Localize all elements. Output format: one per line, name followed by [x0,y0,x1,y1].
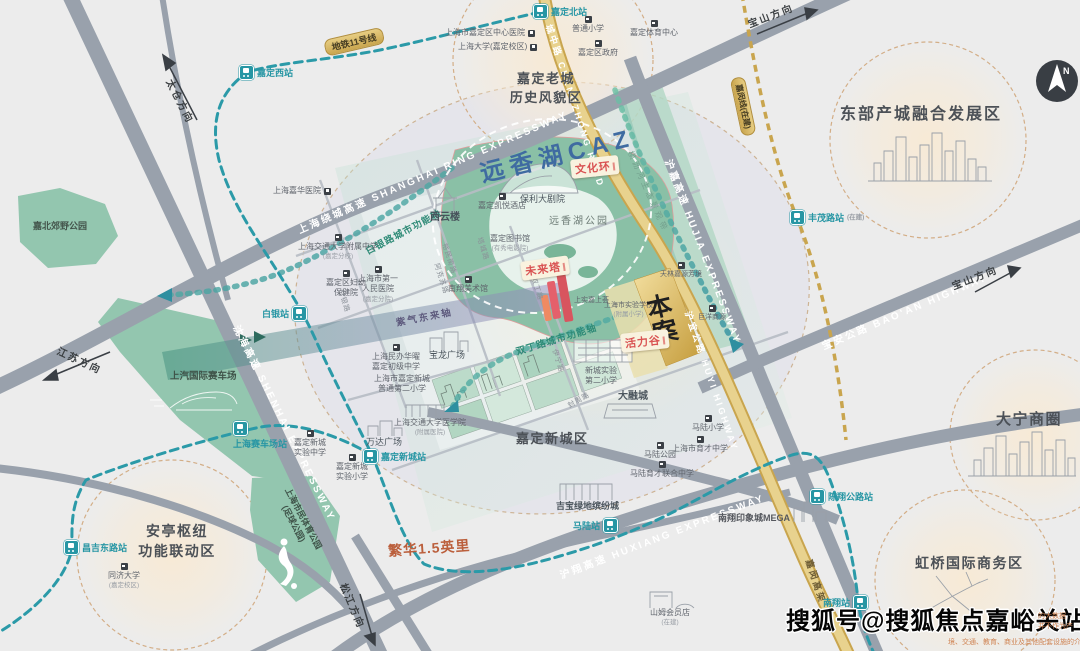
poi-label: 上海市第一 人民医院 [358,274,398,295]
station-label: 嘉定西站 [257,66,293,79]
poi-marker-icon [335,234,342,241]
poi-sublabel: (嘉定校区) [109,582,139,590]
station-label: 嘉定新城站 [381,450,426,463]
metro-station-icon [603,518,618,533]
poi-poly-grand-theatre: 保利大剧院 [520,194,565,206]
poi-malu-park: 马陆公园 [644,442,676,460]
poi-marker-icon [121,563,128,570]
poi-label: 山姆会员店 [650,608,690,618]
metro-station-icon [810,489,825,504]
poi-xincheng-experimental-hs: 嘉定新城 实验中学 [294,430,326,459]
poi-tianlin-jiayuan: 天林嘉源芳境 [660,262,702,279]
metro-station-icon [233,421,248,436]
district-label-hongqiao: 虹桥国际商务区 [915,553,1024,573]
poi-label: 嘉定新城 实验小学 [336,462,368,483]
station-label: 昌吉东路站 [82,541,127,554]
station-jiadingxincheng: 嘉定新城站 [363,449,426,464]
metro-station-icon [790,210,805,225]
compass-north-label: N [1063,66,1070,76]
poi-label: 马陆育才联合中学 [630,469,694,479]
poi-darongcheng-mall: 大融城 [618,390,648,403]
poi-huayao-junior-high: 上海民办华曜 嘉定初级中学 [372,344,420,373]
poi-marker-icon [659,461,666,468]
poi-label: 马陆小学 [692,423,724,433]
poi-label: 南翔美术馆 [448,284,488,294]
poi-label: 上海交通大学附属中学 [298,242,378,252]
compass-icon [1036,60,1078,102]
poi-jiabei-country-park: 嘉北郊野公园 [33,221,87,233]
poi-wanda-plaza: 万达广场 [366,437,402,449]
station-jiadingxi: 嘉定西站 [239,65,293,80]
poi-marker-icon [393,344,400,351]
station-label: 陈翔公路站 [828,490,873,503]
metro-station-icon [292,306,307,321]
poi-label: 嘉定凯悦酒店 [478,201,526,211]
station-label: 上海赛车场站 [233,437,287,450]
poi-label: 天林嘉源芳境 [660,270,702,279]
metro-station-icon [64,540,79,555]
poi-sublabel: (有秀电影院) [492,245,529,253]
poi-label: 同济大学 [108,571,140,581]
station-note: (在建) [847,214,864,222]
poi-marker-icon [465,276,472,283]
poi-sams-club: 山姆会员店(在建) [650,608,690,627]
poi-district-government: 嘉定区政府 [578,40,618,58]
poi-label: 嘉定图书馆 [490,234,530,244]
sams-club-sketch [650,592,694,608]
poi-nanxiang-incity-mega: 南翔印象城MEGA [718,513,790,525]
poi-sublabel: (嘉定分校) [323,253,353,261]
station-racing-circuit: 上海赛车场站 [233,421,287,450]
station-baiyin: 白银站 [262,306,307,321]
station-label: 丰茂路站 [808,211,844,224]
poi-art-museum: 南翔美术馆 [448,276,488,294]
poi-first-peoples-hospital: 上海市第一 人民医院(嘉定分院) [358,266,398,304]
metro-station-icon [363,449,378,464]
poi-tongji-university: 同济大学(嘉定校区) [108,563,140,590]
poi-keppel-greenland-mall: 吉宝绿地缤纷城 [556,501,619,513]
station-label: 嘉定北站 [551,5,587,18]
station-chenxiang-road: 陈翔公路站 [810,489,873,504]
station-jiadingbei: 嘉定北站 [533,4,587,19]
poi-putong-second-primary: 上海市嘉定新城 普通第二小学 [374,374,430,395]
district-label-anting-hub: 安亭枢纽 功能联动区 [132,521,222,561]
district-label-new-town: 嘉定新城区 [516,428,589,447]
poi-marker-icon [705,415,712,422]
poi-label: 上海交通大学医学院 [394,418,466,428]
poi-label: 上海嘉华医院 [273,186,321,196]
poi-juyang-shangyuan: 巨洋商源 [698,305,726,322]
poi-yuanxianghu-park: 远香湖公园 [549,215,609,228]
poi-marker-icon [678,262,685,269]
metro-station-icon [533,4,548,19]
poi-label: 马陆公园 [644,450,676,460]
station-changjidong-road: 昌吉东路站 [64,540,127,555]
poi-marker-icon [651,20,658,27]
poi-sports-center: 嘉定体育中心 [630,20,678,38]
poi-saic-racing-circuit: 上汽国际赛车场 [170,371,237,383]
poi-label: 上海市育才中学 [672,444,728,454]
poi-marker-icon [697,436,704,443]
poi-jiahua-hospital: 上海嘉华医院 [273,186,331,196]
poi-marker-icon [324,188,331,195]
poi-marker-icon [375,266,382,273]
watermark: 搜狐号@搜狐焦点嘉峪关站 [786,601,1080,636]
poi-label: 普通小学 [572,24,604,34]
poi-baolong-plaza: 宝龙广场 [429,350,465,362]
poi-marker-icon [528,30,535,37]
poi-sublabel: (附属小学) [613,311,643,319]
location-map: 嘉定老城 历史风貌区 东部产城融合发展区 大宁商圈 虹桥国际商务区 安亭枢纽 功… [0,0,1080,651]
poi-sublabel: (嘉定分院) [363,296,393,304]
poi-marker-icon [349,454,356,461]
district-label-east-integration: 东部产城融合发展区 [840,100,1002,124]
poi-second-experimental-primary: 新城实验 第二小学 [585,366,617,387]
poi-jiading-library: 嘉定图书馆(有秀电影院) [490,234,530,253]
poi-marker-icon [530,44,537,51]
station-malu: 马陆站 [573,518,618,533]
disclaimer-line: 境、交通、教育、商业及其他配套设施的介绍，旨在提供相关 [948,638,1080,648]
poi-marker-icon [499,193,506,200]
poi-yucai-high-school: 上海市育才中学 [672,436,728,454]
district-label-daning: 大宁商圈 [996,408,1062,429]
poi-marker-icon [657,442,664,449]
disclaimer-fragment: 的大数据 并不作为产 [1038,612,1073,632]
poi-marker-icon [307,430,314,437]
poi-label: 巨洋商源 [698,313,726,322]
poi-malu-yucai-united: 马陆育才联合中学 [630,461,694,479]
poi-xiyunlou: 西云楼 [430,211,460,224]
poi-jiaotong-medical-school: 上海交通大学医学院(附属医院) [394,418,466,437]
district-label-old-town: 嘉定老城 历史风貌区 [498,68,594,106]
poi-sublabel: (在建) [661,619,678,627]
poi-central-hospital: 上海市嘉定区中心医院 [445,28,535,38]
poi-label: 嘉定新城 实验中学 [294,438,326,459]
poi-label: 嘉定体育中心 [630,28,678,38]
poi-label: 上海大学(嘉定校区) [458,42,527,52]
poi-shanghai-university: 上海大学(嘉定校区) [458,42,537,52]
station-label: 白银站 [262,307,289,320]
poi-jiaotong-affiliated-hs: 上海交通大学附属中学(嘉定分校) [298,234,378,261]
poi-label: 上海民办华曜 嘉定初级中学 [372,352,420,373]
poi-marker-icon [709,305,716,312]
poi-marker-icon [595,40,602,47]
poi-hyatt-hotel: 嘉定凯悦酒店 [478,193,526,211]
poi-sublabel: (附属医院) [415,429,445,437]
poi-label: 嘉定区政府 [578,48,618,58]
poi-label: 上海市嘉定区中心医院 [445,28,525,38]
poi-malu-primary: 马陆小学 [692,415,724,433]
poi-marker-icon [343,270,350,277]
metro-station-icon [239,65,254,80]
station-fengmao-road: 丰茂路站(在建) [790,210,864,225]
station-label: 马陆站 [573,519,600,532]
